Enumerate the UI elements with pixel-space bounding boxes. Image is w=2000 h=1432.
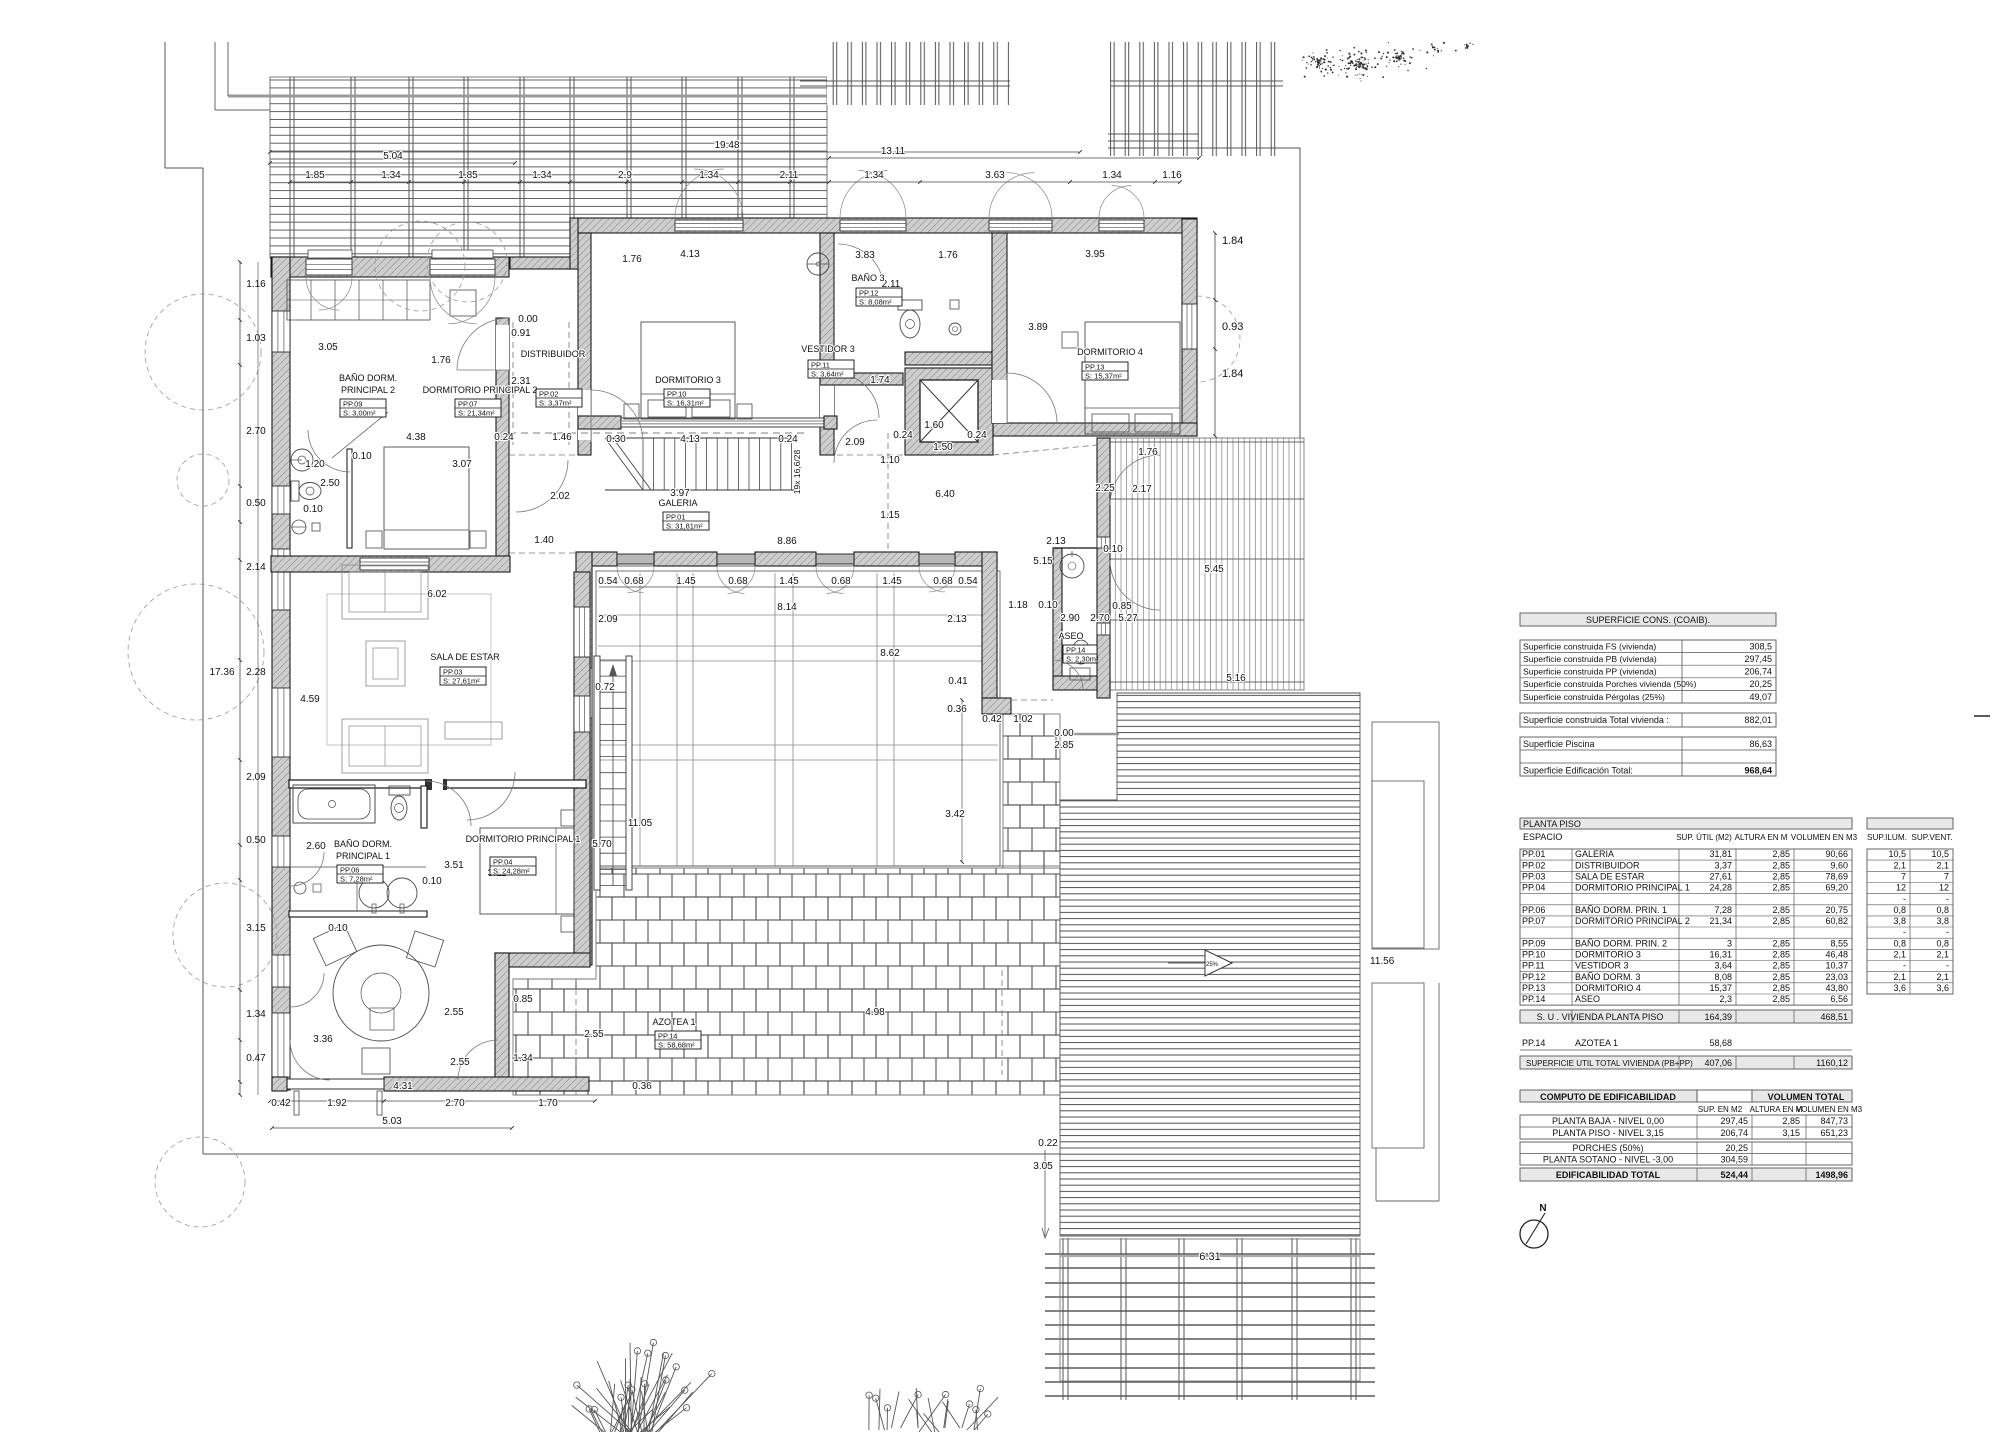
svg-text:PP.03: PP.03 <box>443 668 462 677</box>
svg-text:1.34: 1.34 <box>246 1009 266 1020</box>
svg-text:0,8: 0,8 <box>1936 938 1949 948</box>
svg-text:2.25: 2.25 <box>1095 483 1115 494</box>
svg-text:60,82: 60,82 <box>1825 916 1848 926</box>
svg-text:0,8: 0,8 <box>1893 938 1906 948</box>
svg-text:4.13: 4.13 <box>680 249 700 260</box>
svg-text:1.45: 1.45 <box>882 576 902 587</box>
svg-text:1.34: 1.34 <box>513 1053 533 1064</box>
svg-text:2,85: 2,85 <box>1772 950 1790 960</box>
svg-text:PP.10: PP.10 <box>1522 950 1545 960</box>
svg-text:3: 3 <box>1727 938 1732 948</box>
svg-text:1.02: 1.02 <box>1013 714 1033 725</box>
svg-text:VESTIDOR 3: VESTIDOR 3 <box>1575 961 1629 971</box>
svg-text:651,23: 651,23 <box>1820 1128 1848 1138</box>
svg-text:0.50: 0.50 <box>246 835 266 846</box>
svg-text:3,8: 3,8 <box>1893 916 1906 926</box>
svg-text:882,01: 882,01 <box>1744 715 1772 725</box>
svg-text:0.24: 0.24 <box>893 430 913 441</box>
svg-text:PP.03: PP.03 <box>1522 872 1545 882</box>
svg-text:PP.01: PP.01 <box>1522 849 1545 859</box>
svg-text:1.10: 1.10 <box>880 455 900 466</box>
svg-text:10,5: 10,5 <box>1888 849 1906 859</box>
svg-text:1.15: 1.15 <box>880 510 900 521</box>
svg-text:0,8: 0,8 <box>1936 905 1949 915</box>
svg-text:297,45: 297,45 <box>1720 1116 1748 1126</box>
svg-text:5.27: 5.27 <box>1118 613 1138 624</box>
svg-text:VOLUMEN EN M3: VOLUMEN EN M3 <box>1796 1105 1863 1114</box>
svg-text:0.24: 0.24 <box>967 430 987 441</box>
svg-text:6.31: 6.31 <box>1199 1251 1220 1263</box>
svg-text:2.11: 2.11 <box>780 170 799 181</box>
svg-text:468,51: 468,51 <box>1820 1012 1848 1022</box>
svg-text:S: 3,00m²: S: 3,00m² <box>343 409 376 418</box>
svg-text:90,66: 90,66 <box>1825 849 1848 859</box>
svg-text:PP.06: PP.06 <box>1522 905 1545 915</box>
svg-text:1.50: 1.50 <box>933 442 953 453</box>
svg-text:23,03: 23,03 <box>1825 972 1848 982</box>
svg-text:PP.01: PP.01 <box>666 513 685 522</box>
svg-text:PP.13: PP.13 <box>1522 983 1545 993</box>
svg-text:COMPUTO DE EDIFICABILIDAD: COMPUTO DE EDIFICABILIDAD <box>1540 1092 1676 1102</box>
svg-text:0.68: 0.68 <box>933 576 953 587</box>
svg-text:2,85: 2,85 <box>1772 916 1790 926</box>
svg-text:1160,12: 1160,12 <box>1816 1058 1848 1068</box>
svg-text:206,74: 206,74 <box>1720 1128 1748 1138</box>
svg-text:4.59: 4.59 <box>300 694 320 705</box>
svg-text:Superficie construida PB (vivi: Superficie construida PB (vivienda) <box>1523 654 1657 664</box>
svg-text:GALERIA: GALERIA <box>1575 849 1614 859</box>
svg-text:BAÑO 3: BAÑO 3 <box>851 273 884 283</box>
svg-text:2.02: 2.02 <box>550 491 570 502</box>
svg-text:0.54: 0.54 <box>958 576 978 587</box>
svg-text:3.07: 3.07 <box>452 459 472 470</box>
svg-text:PP.07: PP.07 <box>1522 916 1545 926</box>
svg-text:1.20: 1.20 <box>305 459 325 470</box>
svg-text:9,60: 9,60 <box>1830 860 1848 870</box>
svg-text:PLANTA SOTANO - NIVEL -3,00: PLANTA SOTANO - NIVEL -3,00 <box>1543 1155 1673 1165</box>
svg-text:ALTURA EN M: ALTURA EN M <box>1735 833 1788 842</box>
svg-text:3.95: 3.95 <box>1085 249 1105 260</box>
svg-text:6,56: 6,56 <box>1830 994 1848 1004</box>
svg-text:847,73: 847,73 <box>1820 1116 1848 1126</box>
svg-text:PLANTA BAJA - NIVEL 0,00: PLANTA BAJA - NIVEL 0,00 <box>1552 1116 1664 1126</box>
svg-text:DORMITORIO 4: DORMITORIO 4 <box>1575 983 1641 993</box>
svg-text:VOLUMEN EN M3: VOLUMEN EN M3 <box>1791 833 1858 842</box>
svg-text:2.60: 2.60 <box>306 841 326 852</box>
svg-text:DISTRIBUIDOR: DISTRIBUIDOR <box>521 349 586 359</box>
svg-text:Superficie Piscina: Superficie Piscina <box>1523 739 1595 749</box>
svg-text:2,1: 2,1 <box>1936 950 1949 960</box>
svg-text:7: 7 <box>1901 872 1906 882</box>
svg-text:0.93: 0.93 <box>1222 321 1243 333</box>
svg-text:0.85: 0.85 <box>513 994 533 1005</box>
svg-text:19.48: 19.48 <box>714 140 739 151</box>
svg-text:PP.04: PP.04 <box>1522 883 1545 893</box>
svg-text:1.34: 1.34 <box>1102 170 1122 181</box>
svg-text:407,06: 407,06 <box>1704 1058 1732 1068</box>
svg-text:3.89: 3.89 <box>1028 322 1048 333</box>
svg-text:69,20: 69,20 <box>1825 883 1848 893</box>
svg-text:0.00: 0.00 <box>518 314 538 325</box>
svg-text:SUPERFICIE CONS. (COAIB).: SUPERFICIE CONS. (COAIB). <box>1586 615 1710 625</box>
svg-text:7: 7 <box>1944 872 1949 882</box>
svg-text:DORMITORIO PRINCIPAL 1: DORMITORIO PRINCIPAL 1 <box>1575 883 1690 893</box>
svg-text:AZOTEA 1: AZOTEA 1 <box>1575 1038 1618 1048</box>
svg-text:2,85: 2,85 <box>1772 994 1790 1004</box>
svg-text:5.16: 5.16 <box>1226 673 1246 684</box>
svg-text:3.83: 3.83 <box>855 250 875 261</box>
svg-text:1.16: 1.16 <box>1162 170 1182 181</box>
svg-text:-: - <box>1903 927 1906 937</box>
svg-text:SUP.VENT.: SUP.VENT. <box>1911 833 1952 842</box>
svg-text:1.76: 1.76 <box>622 254 642 265</box>
svg-text:DORMITORIO PRINCIPAL 1: DORMITORIO PRINCIPAL 1 <box>466 834 581 844</box>
svg-text:1.34: 1.34 <box>532 170 552 181</box>
svg-text:4.98: 4.98 <box>865 1007 885 1018</box>
svg-text:8.62: 8.62 <box>880 648 900 659</box>
svg-text:6.02: 6.02 <box>427 589 447 600</box>
svg-text:GALERIA: GALERIA <box>658 498 697 508</box>
svg-text:20,25: 20,25 <box>1725 1143 1748 1153</box>
svg-text:PP.07: PP.07 <box>458 400 477 409</box>
svg-text:2,1: 2,1 <box>1936 860 1949 870</box>
svg-text:11.05: 11.05 <box>628 818 653 829</box>
svg-text:2.13: 2.13 <box>947 614 967 625</box>
svg-text:-: - <box>1946 927 1949 937</box>
svg-text:2.70: 2.70 <box>1090 613 1110 624</box>
svg-text:524,44: 524,44 <box>1720 1170 1748 1180</box>
svg-text:-: - <box>1903 961 1906 971</box>
svg-text:3,8: 3,8 <box>1936 916 1949 926</box>
svg-text:10,5: 10,5 <box>1931 849 1949 859</box>
svg-text:S: 27,61m²: S: 27,61m² <box>443 677 480 686</box>
svg-text:1.92: 1.92 <box>327 1098 347 1109</box>
svg-text:0.54: 0.54 <box>598 576 618 587</box>
svg-text:308,5: 308,5 <box>1749 641 1772 651</box>
svg-text:Superficie construida FS (vivi: Superficie construida FS (vivienda) <box>1523 641 1656 651</box>
svg-text:2,85: 2,85 <box>1772 905 1790 915</box>
svg-text:4.13: 4.13 <box>680 434 700 445</box>
svg-text:3.15: 3.15 <box>246 923 266 934</box>
svg-text:8,55: 8,55 <box>1830 938 1848 948</box>
svg-text:2.09: 2.09 <box>845 437 865 448</box>
svg-text:S: 31,81m²: S: 31,81m² <box>666 522 703 531</box>
svg-text:1.18: 1.18 <box>1008 600 1028 611</box>
svg-text:S. U . VIVIENDA PLANTA PISO: S. U . VIVIENDA PLANTA PISO <box>1537 1012 1664 1022</box>
svg-text:1.84: 1.84 <box>1222 368 1243 380</box>
svg-text:25%: 25% <box>1206 962 1219 968</box>
svg-text:2.90: 2.90 <box>1060 613 1080 624</box>
svg-text:1.16: 1.16 <box>246 279 266 290</box>
svg-text:ALTURA EN M: ALTURA EN M <box>1750 1105 1803 1114</box>
svg-text:0.85: 0.85 <box>1112 601 1132 612</box>
svg-text:0.10: 0.10 <box>352 451 372 462</box>
svg-text:AZOTEA 1: AZOTEA 1 <box>652 1017 695 1027</box>
svg-text:5.45: 5.45 <box>1204 564 1224 575</box>
svg-text:BAÑO DORM.: BAÑO DORM. <box>339 373 397 383</box>
svg-text:2.55: 2.55 <box>444 1007 464 1018</box>
svg-text:PP.11: PP.11 <box>811 361 830 370</box>
svg-text:3,6: 3,6 <box>1936 983 1949 993</box>
svg-text:PP.10: PP.10 <box>667 390 686 399</box>
svg-text:0.10: 0.10 <box>422 876 442 887</box>
svg-text:0.22: 0.22 <box>1038 1138 1058 1149</box>
svg-text:2,85: 2,85 <box>1772 972 1790 982</box>
svg-text:13.11: 13.11 <box>881 146 906 157</box>
svg-text:16,31: 16,31 <box>1709 950 1732 960</box>
svg-text:2.55: 2.55 <box>450 1057 470 1068</box>
svg-text:DISTRIBUIDOR: DISTRIBUIDOR <box>1575 860 1640 870</box>
svg-text:86,63: 86,63 <box>1749 739 1772 749</box>
svg-text:Superficie construida PP (vivi: Superficie construida PP (vivienda) <box>1523 667 1657 677</box>
svg-text:3,37: 3,37 <box>1714 860 1732 870</box>
svg-text:2,85: 2,85 <box>1772 938 1790 948</box>
svg-text:2,85: 2,85 <box>1782 1116 1800 1126</box>
svg-text:3.05: 3.05 <box>1033 1161 1053 1172</box>
svg-text:0.72: 0.72 <box>595 682 615 693</box>
svg-text:31,81: 31,81 <box>1709 849 1732 859</box>
svg-text:6.40: 6.40 <box>935 489 955 500</box>
svg-text:PP.14: PP.14 <box>1522 994 1545 1004</box>
svg-text:12: 12 <box>1896 883 1906 893</box>
svg-text:1498,96: 1498,96 <box>1815 1170 1848 1180</box>
svg-text:0.68: 0.68 <box>728 576 748 587</box>
svg-text:BAÑO DORM. 3: BAÑO DORM. 3 <box>1575 972 1641 982</box>
svg-text:2.9: 2.9 <box>618 170 632 181</box>
svg-text:0.10: 0.10 <box>328 923 348 934</box>
svg-text:BAÑO DORM.: BAÑO DORM. <box>334 839 392 849</box>
svg-text:PRINCIPAL 1: PRINCIPAL 1 <box>336 851 390 861</box>
svg-text:S: 7,28m²: S: 7,28m² <box>340 875 373 884</box>
svg-text:8.86: 8.86 <box>777 536 797 547</box>
svg-text:968,64: 968,64 <box>1744 766 1772 776</box>
svg-text:PP.09: PP.09 <box>343 400 362 409</box>
svg-text:20,75: 20,75 <box>1825 905 1848 915</box>
svg-text:1.45: 1.45 <box>676 576 696 587</box>
svg-text:Superficie Edificación Total:: Superficie Edificación Total: <box>1523 766 1633 776</box>
svg-text:DORMITORIO 3: DORMITORIO 3 <box>1575 950 1641 960</box>
svg-text:PLANTA PISO - NIVEL 3,15: PLANTA PISO - NIVEL 3,15 <box>1552 1128 1664 1138</box>
svg-text:1.85: 1.85 <box>305 170 325 181</box>
svg-text:S: 16,31m²: S: 16,31m² <box>667 399 704 408</box>
svg-text:0.24: 0.24 <box>778 434 798 445</box>
svg-text:Superficie construida Porches: Superficie construida Porches vivienda (… <box>1523 679 1697 689</box>
svg-text:3.42: 3.42 <box>945 809 965 820</box>
svg-text:2,85: 2,85 <box>1772 983 1790 993</box>
svg-text:PP.02: PP.02 <box>539 390 558 399</box>
svg-text:2.55: 2.55 <box>584 1029 604 1040</box>
svg-text:5.70: 5.70 <box>592 839 612 850</box>
svg-text:21,34: 21,34 <box>1709 916 1732 926</box>
svg-text:DORMITORIO 4: DORMITORIO 4 <box>1077 347 1143 357</box>
svg-text:1.76: 1.76 <box>1138 447 1158 458</box>
svg-text:2,1: 2,1 <box>1936 972 1949 982</box>
svg-text:1.76: 1.76 <box>938 250 958 261</box>
svg-text:-: - <box>1946 894 1949 904</box>
svg-text:3.63: 3.63 <box>985 170 1005 181</box>
svg-text:S: 15,37m²: S: 15,37m² <box>1085 372 1122 381</box>
svg-text:0.10: 0.10 <box>303 504 323 515</box>
svg-text:43,80: 43,80 <box>1825 983 1848 993</box>
svg-text:PP.14: PP.14 <box>1066 646 1085 655</box>
svg-text:58,68: 58,68 <box>1709 1038 1732 1048</box>
svg-text:PP.06: PP.06 <box>340 866 359 875</box>
svg-text:206,74: 206,74 <box>1744 667 1772 677</box>
svg-text:15,37: 15,37 <box>1709 983 1732 993</box>
svg-text:8,08: 8,08 <box>1714 972 1732 982</box>
svg-text:BAÑO DORM. PRIN. 1: BAÑO DORM. PRIN. 1 <box>1575 905 1667 915</box>
svg-text:1.40: 1.40 <box>534 535 554 546</box>
svg-text:2.28: 2.28 <box>246 667 266 678</box>
svg-text:2.14: 2.14 <box>246 562 266 573</box>
svg-text:2.85: 2.85 <box>1054 740 1074 751</box>
svg-text:S: 2,30m²: S: 2,30m² <box>1066 655 1099 664</box>
svg-text:PP.14: PP.14 <box>1522 1038 1545 1048</box>
svg-text:17.36: 17.36 <box>209 667 234 678</box>
svg-text:4.31: 4.31 <box>393 1081 413 1092</box>
svg-text:10,37: 10,37 <box>1825 961 1848 971</box>
svg-text:SUP. ÚTIL (M2): SUP. ÚTIL (M2) <box>1676 833 1732 842</box>
svg-text:S: 3,37m²: S: 3,37m² <box>539 399 572 408</box>
svg-text:3,64: 3,64 <box>1714 961 1732 971</box>
svg-text:2,1: 2,1 <box>1893 860 1906 870</box>
svg-text:3,15: 3,15 <box>1782 1128 1800 1138</box>
svg-text:PP.13: PP.13 <box>1085 363 1104 372</box>
svg-text:Superficie construida Total vi: Superficie construida Total vivienda : <box>1523 715 1669 725</box>
svg-text:5.15: 5.15 <box>1033 556 1053 567</box>
svg-text:49,07: 49,07 <box>1749 692 1772 702</box>
svg-text:ESPACIO: ESPACIO <box>1523 832 1562 842</box>
svg-text:4.38: 4.38 <box>406 432 426 443</box>
svg-text:304,59: 304,59 <box>1720 1155 1748 1165</box>
svg-text:11.56: 11.56 <box>1370 956 1395 967</box>
svg-text:0.68: 0.68 <box>624 576 644 587</box>
svg-text:PRINCIPAL 2: PRINCIPAL 2 <box>341 385 395 395</box>
svg-text:2.70: 2.70 <box>445 1098 465 1109</box>
svg-text:ASEO: ASEO <box>1058 631 1083 641</box>
svg-text:2,85: 2,85 <box>1772 961 1790 971</box>
svg-text:2.17: 2.17 <box>1132 484 1152 495</box>
svg-text:VESTIDOR 3: VESTIDOR 3 <box>801 344 855 354</box>
svg-text:0.42: 0.42 <box>271 1098 291 1109</box>
svg-text:0.36: 0.36 <box>632 1081 652 1092</box>
svg-text:7,28: 7,28 <box>1714 905 1732 915</box>
svg-text:ASEO: ASEO <box>1575 994 1600 1004</box>
svg-text:SUP. EN M2: SUP. EN M2 <box>1698 1105 1743 1114</box>
svg-text:S: 58,68m²: S: 58,68m² <box>658 1041 695 1050</box>
svg-text:0.42: 0.42 <box>982 714 1002 725</box>
svg-text:2,85: 2,85 <box>1772 872 1790 882</box>
svg-text:-: - <box>1946 961 1949 971</box>
svg-text:-: - <box>1903 894 1906 904</box>
svg-text:PP.14: PP.14 <box>658 1032 677 1041</box>
svg-text:0.10: 0.10 <box>1103 544 1123 555</box>
svg-text:24,28: 24,28 <box>1709 883 1732 893</box>
svg-text:1.76: 1.76 <box>431 355 451 366</box>
svg-text:2.70: 2.70 <box>246 426 266 437</box>
svg-text:S: 8,08m²: S: 8,08m² <box>859 298 892 307</box>
svg-text:DORMITORIO PRINCIPAL 2: DORMITORIO PRINCIPAL 2 <box>1575 916 1690 926</box>
svg-text:PP.12: PP.12 <box>859 289 878 298</box>
svg-text:164,39: 164,39 <box>1704 1012 1732 1022</box>
svg-text:297,45: 297,45 <box>1744 654 1772 664</box>
svg-text:BAÑO DORM. PRIN. 2: BAÑO DORM. PRIN. 2 <box>1575 938 1667 948</box>
svg-text:1.70: 1.70 <box>538 1098 558 1109</box>
svg-text:2,1: 2,1 <box>1893 950 1906 960</box>
svg-text:N: N <box>1539 1203 1546 1214</box>
svg-text:46,48: 46,48 <box>1825 950 1848 960</box>
svg-text:SUP.ILUM.: SUP.ILUM. <box>1867 833 1907 842</box>
svg-text:DORMITORIO 3: DORMITORIO 3 <box>655 375 721 385</box>
svg-text:2.13: 2.13 <box>1046 536 1066 547</box>
svg-text:EDIFICABILIDAD TOTAL: EDIFICABILIDAD TOTAL <box>1556 1170 1661 1180</box>
svg-text:0.00: 0.00 <box>1054 728 1074 739</box>
svg-text:2.50: 2.50 <box>320 478 340 489</box>
svg-text:2,85: 2,85 <box>1772 849 1790 859</box>
svg-text:1.84: 1.84 <box>1222 235 1243 247</box>
svg-text:S: 3,64m²: S: 3,64m² <box>811 370 844 379</box>
svg-text:78,69: 78,69 <box>1825 872 1848 882</box>
svg-text:0.30: 0.30 <box>606 434 626 445</box>
svg-text:SALA DE ESTAR: SALA DE ESTAR <box>1575 872 1645 882</box>
svg-text:0.47: 0.47 <box>246 1053 266 1064</box>
svg-text:2.09: 2.09 <box>246 772 266 783</box>
svg-text:0.50: 0.50 <box>246 498 266 509</box>
svg-text:S: 21,34m²: S: 21,34m² <box>458 409 495 418</box>
svg-text:1.34: 1.34 <box>381 170 401 181</box>
svg-text:1.45: 1.45 <box>779 576 799 587</box>
svg-text:S: 24,28m²: S: 24,28m² <box>493 867 530 876</box>
svg-text:1.34: 1.34 <box>699 170 719 181</box>
svg-text:PLANTA PISO: PLANTA PISO <box>1523 819 1581 829</box>
svg-text:1.03: 1.03 <box>246 333 266 344</box>
svg-text:1.85: 1.85 <box>458 170 478 181</box>
svg-text:5.04: 5.04 <box>383 151 403 162</box>
svg-text:2.09: 2.09 <box>598 614 618 625</box>
svg-text:5.03: 5.03 <box>382 1116 402 1127</box>
svg-text:PP.04: PP.04 <box>493 858 512 867</box>
svg-text:2,85: 2,85 <box>1772 860 1790 870</box>
svg-text:0.24: 0.24 <box>494 432 514 443</box>
svg-text:2,1: 2,1 <box>1893 972 1906 982</box>
svg-text:PP.09: PP.09 <box>1522 938 1545 948</box>
svg-text:PORCHES (50%): PORCHES (50%) <box>1572 1143 1643 1153</box>
svg-text:0.41: 0.41 <box>948 676 968 687</box>
svg-text:1.74: 1.74 <box>870 375 890 386</box>
svg-text:Superficie construida Pérgolas: Superficie construida Pérgolas (25%) <box>1523 692 1665 702</box>
svg-text:0,8: 0,8 <box>1893 905 1906 915</box>
svg-text:0.10: 0.10 <box>1038 600 1058 611</box>
svg-text:VOLUMEN TOTAL: VOLUMEN TOTAL <box>1768 1092 1845 1102</box>
svg-text:19x 16,6/28: 19x 16,6/28 <box>792 450 802 495</box>
svg-text:SALA DE ESTAR: SALA DE ESTAR <box>430 652 500 662</box>
svg-text:3.05: 3.05 <box>318 342 338 353</box>
svg-text:3.36: 3.36 <box>313 1034 333 1045</box>
svg-text:3,6: 3,6 <box>1893 983 1906 993</box>
svg-text:3.51: 3.51 <box>444 860 464 871</box>
svg-text:DORMITORIO PRINCIPAL 2: DORMITORIO PRINCIPAL 2 <box>423 385 538 395</box>
svg-text:1.34: 1.34 <box>864 170 884 181</box>
svg-text:2,3: 2,3 <box>1719 994 1732 1004</box>
svg-text:PP.02: PP.02 <box>1522 860 1545 870</box>
svg-text:0.91: 0.91 <box>511 328 531 339</box>
svg-text:PP.12: PP.12 <box>1522 972 1545 982</box>
svg-text:0.36: 0.36 <box>947 704 967 715</box>
svg-text:PP.11: PP.11 <box>1522 961 1545 971</box>
svg-text:SUPERFICIE UTIL TOTAL VIVIENDA: SUPERFICIE UTIL TOTAL VIVIENDA (PB+PP) <box>1526 1059 1693 1068</box>
svg-text:1.46: 1.46 <box>552 432 572 443</box>
svg-text:1.60: 1.60 <box>924 420 944 431</box>
